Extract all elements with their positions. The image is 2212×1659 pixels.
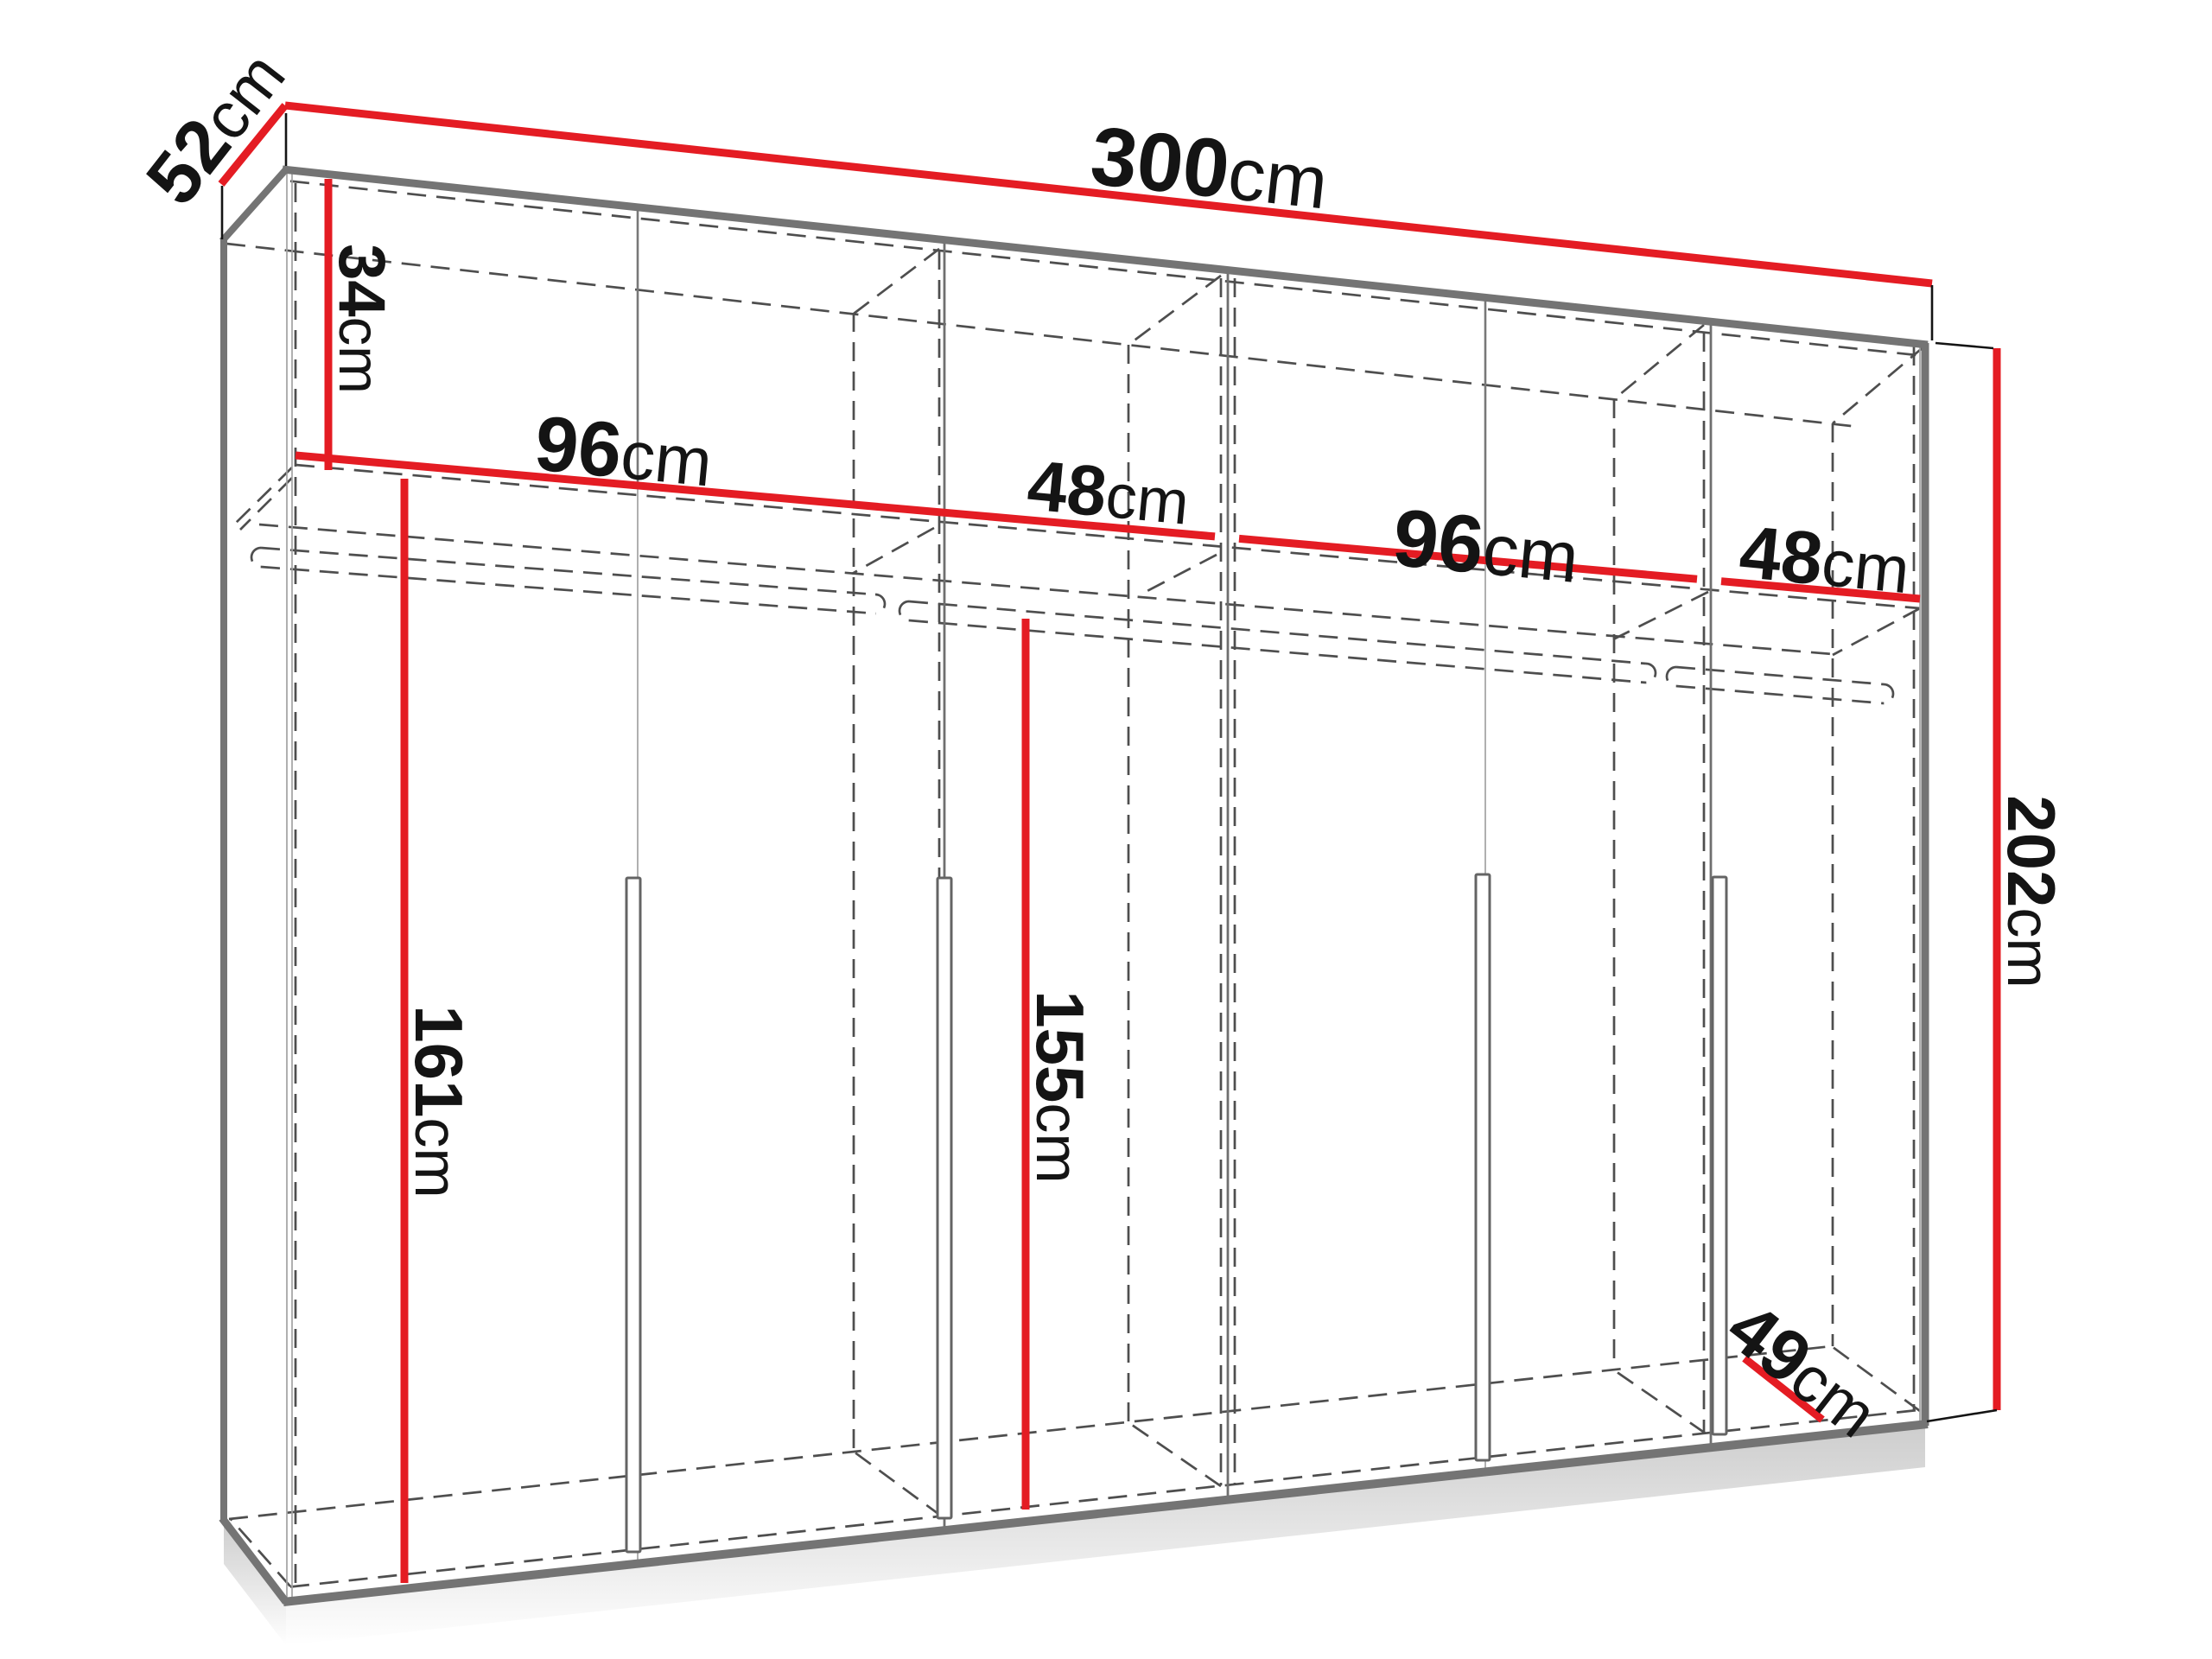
svg-text:161cm: 161cm [401,1005,477,1198]
svg-text:202cm: 202cm [1993,795,2069,988]
svg-text:34cm: 34cm [325,244,398,394]
svg-text:155cm: 155cm [1022,990,1098,1183]
